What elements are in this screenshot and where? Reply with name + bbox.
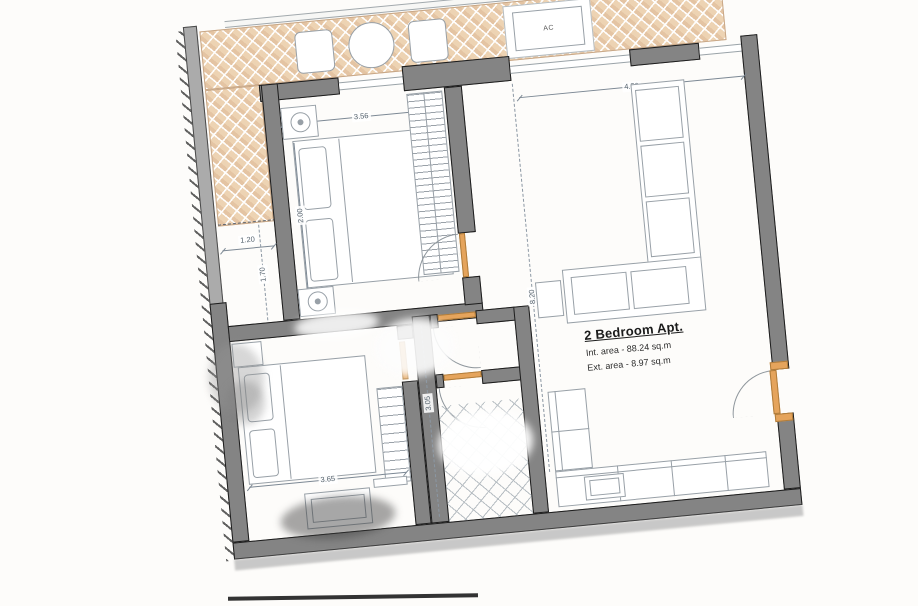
sofa-cushion-3 (646, 197, 695, 257)
wall-right-lower (777, 412, 801, 489)
sofa-cushion-1 (635, 86, 684, 142)
side-table (535, 280, 564, 318)
sofa-cushion-2 (640, 142, 689, 198)
dim-bedroom2-width: 3.65 (318, 474, 337, 485)
floor-plan: AC 3.56 2.00 1.20 1.70 3 (172, 0, 847, 595)
title-block: 2 Bedroom Apt. Int. area - 88.24 sq.m Ex… (584, 311, 767, 373)
terrace-chair-right (407, 18, 449, 63)
ac-label: AC (543, 25, 554, 33)
sofa-seat-cushion-2 (630, 266, 689, 309)
window-bedroom1 (339, 76, 403, 90)
entrance-door-sill-top (770, 361, 789, 371)
entrance-door-sill-bottom (775, 412, 794, 422)
wall-bedroom1-door-stub (462, 276, 483, 306)
kitchen-sink-basin (589, 477, 620, 496)
page-border-line (228, 593, 478, 600)
dim-hall-length: 3.05 (422, 394, 433, 413)
bedroom2-shelf (373, 476, 408, 488)
bathroom-door-lintel (443, 371, 481, 381)
bedroom1-pillow-2 (305, 218, 339, 282)
dim-strip-length: 1.70 (257, 265, 268, 284)
window-living-right (699, 44, 742, 56)
bedroom2-pillow-2 (249, 428, 279, 478)
dim-bedroom1-bed: 2.00 (295, 206, 306, 225)
dimension-line-strip-width (222, 245, 274, 251)
bedroom1-pillow-1 (298, 146, 332, 210)
ac-unit: AC (512, 6, 585, 52)
sofa-seat-cushion-1 (571, 272, 630, 315)
dim-bedroom1-width: 3.56 (352, 111, 371, 122)
dim-strip-width: 1.20 (238, 234, 257, 245)
floorplan-page: { "title_block": { "title": "2 Bedroom A… (0, 0, 918, 606)
wall-wc-north-b (475, 307, 516, 325)
terrace-chair-left (294, 29, 336, 74)
wall-bath-divider-b (481, 366, 522, 384)
